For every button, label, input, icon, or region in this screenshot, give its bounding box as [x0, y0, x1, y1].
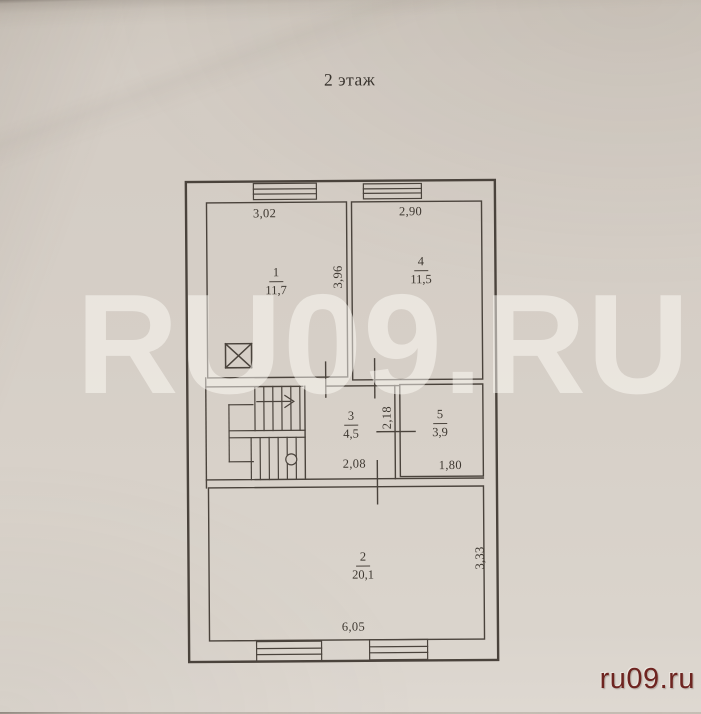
window-bottom-left — [257, 641, 322, 661]
room-number: 1 — [269, 265, 283, 282]
room-4-outline — [351, 201, 482, 380]
stair-direction-arrow — [257, 395, 294, 407]
site-credit: ru09.ru — [600, 663, 695, 696]
room-area: 11,5 — [410, 271, 432, 287]
stair-column-icon — [286, 454, 297, 465]
dim-room4-width: 2,90 — [399, 205, 422, 218]
room-5-label: 5 3,9 — [432, 407, 448, 440]
room-1-label: 1 11,7 — [265, 265, 287, 298]
vent-shaft-icon — [225, 344, 251, 368]
room-area: 20,1 — [352, 566, 374, 582]
dim-room1-depth: 3,96 — [332, 265, 345, 288]
room-4-label: 4 11,5 — [410, 254, 432, 287]
floor-title: 2 этаж — [324, 69, 376, 90]
window-top-left — [253, 183, 316, 199]
dim-room1-width: 3,02 — [253, 207, 276, 220]
room-area: 3,9 — [432, 424, 448, 440]
room-number: 5 — [433, 407, 447, 424]
floor-plan: 2 этаж 1 11,7 4 11,5 3 4,5 5 3,9 2 20,1 … — [0, 0, 701, 714]
room-number: 3 — [344, 409, 358, 426]
dim-room5-width: 1,80 — [439, 459, 462, 472]
windows — [253, 182, 427, 661]
room-2-outline — [208, 486, 484, 641]
dim-hall-width: 2,08 — [343, 458, 366, 471]
dim-room2-width: 6,05 — [342, 621, 365, 634]
room-number: 4 — [414, 254, 428, 271]
dim-room2-depth: 3,33 — [474, 546, 487, 569]
dim-hall-depth: 2,18 — [381, 406, 394, 429]
room-number: 2 — [356, 550, 370, 567]
room-3-label: 3 4,5 — [343, 409, 359, 442]
room-area: 4,5 — [343, 425, 359, 441]
room-area: 11,7 — [265, 282, 287, 298]
floor-plan-drawing — [0, 0, 701, 714]
window-top-right — [363, 183, 421, 198]
outer-walls — [186, 180, 498, 662]
window-bottom-right — [370, 639, 428, 659]
room-2-label: 2 20,1 — [352, 550, 374, 583]
staircase — [229, 386, 306, 480]
